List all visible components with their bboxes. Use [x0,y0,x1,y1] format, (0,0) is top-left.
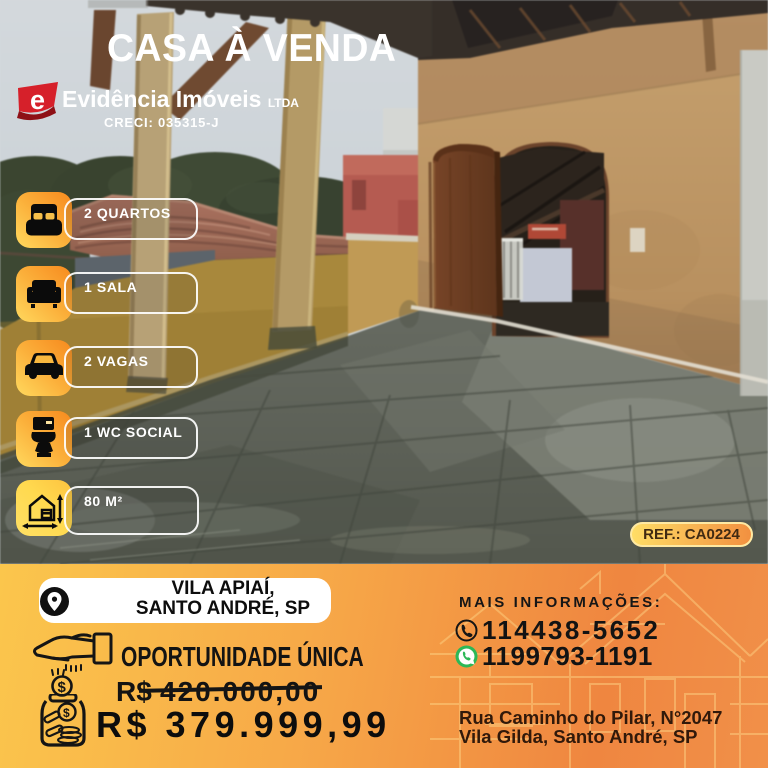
svg-text:$: $ [63,706,70,720]
svg-text:e: e [30,85,45,115]
